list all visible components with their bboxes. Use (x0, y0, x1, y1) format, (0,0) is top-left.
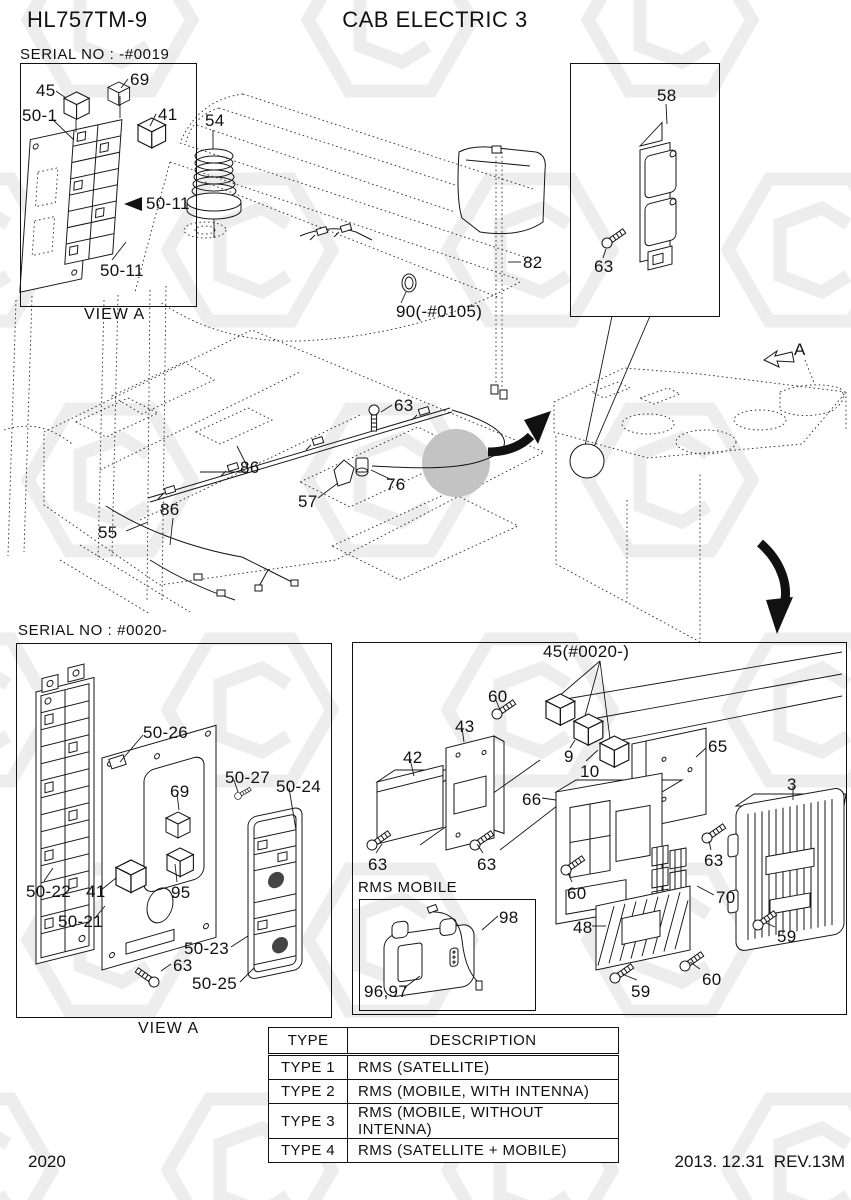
serial-label-0019: SERIAL NO : -#0019 (20, 46, 169, 63)
callout-95: 95 (171, 884, 191, 902)
callout-86a: 86 (240, 459, 260, 477)
callout-50-1: 50-1 (22, 107, 57, 125)
view-a-label-bottom: VIEW A (138, 1020, 199, 1038)
callout-63f: 63 (704, 852, 724, 870)
type-description-table: TYPE DESCRIPTION TYPE 1 RMS (SATELLITE) … (268, 1027, 619, 1163)
callout-54: 54 (205, 112, 225, 130)
part-58-detail-box (570, 63, 720, 317)
console-drawing (554, 351, 846, 642)
cab-floor-harness-drawing (4, 286, 551, 614)
callout-57: 57 (298, 493, 318, 511)
callout-10: 10 (580, 763, 600, 781)
rotate-view-arrow (766, 597, 793, 634)
callout-82: 82 (523, 254, 543, 272)
view-a-label-top: VIEW A (84, 306, 145, 324)
callout-45: 45 (36, 82, 56, 100)
catalog-page: HL757TM-9 CAB ELECTRIC 3 SERIAL NO : -#0… (0, 0, 851, 1200)
callout-50-21: 50-21 (58, 913, 103, 931)
table-row: TYPE 3 RMS (MOBILE, WITHOUT INTENNA) (269, 1104, 619, 1139)
callout-58: 58 (657, 87, 677, 105)
type-2-description: RMS (MOBILE, WITH INTENNA) (348, 1080, 619, 1104)
callout-63-floor: 63 (394, 397, 414, 415)
callout-69b: 69 (170, 783, 190, 801)
view-a-direction-arrow (764, 351, 794, 367)
callout-70: 70 (716, 889, 736, 907)
callout-50-27: 50-27 (225, 769, 270, 787)
type-1-description: RMS (SATELLITE) (348, 1055, 619, 1080)
callout-55: 55 (98, 524, 118, 542)
callout-59a: 59 (631, 983, 651, 1001)
callout-59b: 59 (777, 928, 797, 946)
callout-86b: 86 (160, 501, 180, 519)
page-number: 2020 (28, 1152, 66, 1172)
callout-50-24: 50-24 (276, 778, 321, 796)
callout-63e: 63 (477, 856, 497, 874)
type-4-cell: TYPE 4 (269, 1139, 348, 1163)
callout-45-0020: 45(#0020-) (543, 643, 629, 661)
table-row: TYPE 2 RMS (MOBILE, WITH INTENNA) (269, 1080, 619, 1104)
callout-50-22: 50-22 (26, 883, 71, 901)
callout-43: 43 (455, 718, 475, 736)
zoom-highlight-circle (422, 429, 490, 497)
callout-66: 66 (522, 791, 542, 809)
callout-60c: 60 (702, 971, 722, 989)
rms-mobile-label: RMS MOBILE (358, 879, 457, 896)
type-3-cell: TYPE 3 (269, 1104, 348, 1139)
callout-63d: 63 (368, 856, 388, 874)
callout-90: 90(-#0105) (396, 303, 482, 321)
callout-48: 48 (573, 919, 593, 937)
callout-98: 98 (499, 909, 519, 927)
callout-50-11b: 50-11 (100, 262, 144, 280)
callout-63-viewa: 63 (173, 957, 193, 975)
type-4-description: RMS (SATELLITE + MOBILE) (348, 1139, 619, 1163)
direction-label-a: A (794, 341, 806, 359)
type-1-cell: TYPE 1 (269, 1055, 348, 1080)
type-2-cell: TYPE 2 (269, 1080, 348, 1104)
table-row: TYPE 4 RMS (SATELLITE + MOBILE) (269, 1139, 619, 1163)
callout-41: 41 (158, 106, 178, 124)
callout-42: 42 (403, 749, 423, 767)
callout-65: 65 (708, 738, 728, 756)
callout-50-26: 50-26 (143, 724, 188, 742)
model-code: HL757TM-9 (27, 7, 148, 33)
callout-96-97: 96,97 (364, 983, 408, 1001)
callout-69: 69 (130, 71, 150, 89)
callout-60a: 60 (488, 688, 508, 706)
revision-date: 2013. 12.31 REV.13M (675, 1152, 845, 1172)
callout-50-11: 50-11 (146, 195, 190, 213)
type-3-description: RMS (MOBILE, WITHOUT INTENNA) (348, 1104, 619, 1139)
serial-label-0020: SERIAL NO : #0020- (18, 622, 167, 639)
callout-76: 76 (386, 476, 406, 494)
page-title: CAB ELECTRIC 3 (260, 7, 610, 33)
callout-3: 3 (787, 776, 797, 794)
callout-60b: 60 (567, 885, 587, 903)
callout-41b: 41 (86, 883, 106, 901)
callout-9: 9 (564, 748, 574, 766)
callout-63-bracket: 63 (594, 258, 614, 276)
table-header-description: DESCRIPTION (348, 1028, 619, 1055)
table-header-type: TYPE (269, 1028, 348, 1055)
table-row: TYPE 1 RMS (SATELLITE) (269, 1055, 619, 1080)
callout-50-25: 50-25 (192, 975, 237, 993)
